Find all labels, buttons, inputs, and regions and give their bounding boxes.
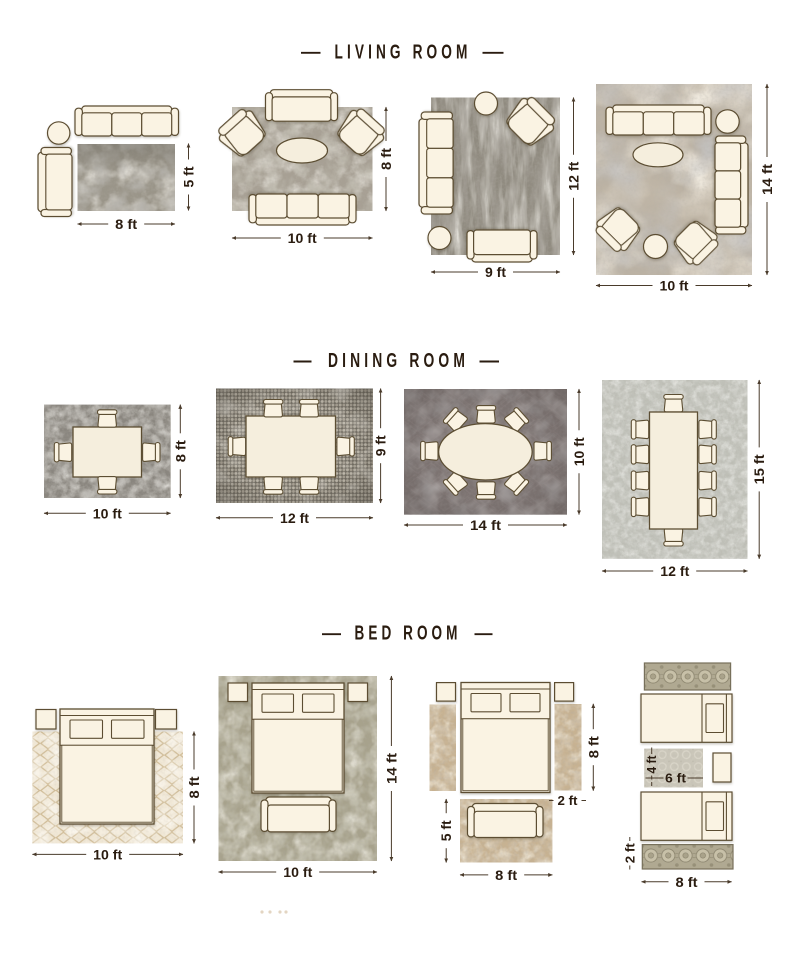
svg-text:8 ft: 8 ft <box>172 440 188 462</box>
svg-text:15 ft: 15 ft <box>751 454 767 484</box>
svg-text:10 ft: 10 ft <box>571 437 587 466</box>
svg-text:5 ft: 5 ft <box>438 820 454 841</box>
svg-text:12 ft: 12 ft <box>660 563 689 579</box>
svg-text:6 ft: 6 ft <box>665 771 687 786</box>
svg-text:8 ft: 8 ft <box>495 867 517 883</box>
svg-text:10 ft: 10 ft <box>93 846 122 862</box>
svg-text:12 ft: 12 ft <box>280 510 309 526</box>
svg-text:14 ft: 14 ft <box>383 753 399 784</box>
svg-text:DINING ROOM: DINING ROOM <box>328 350 469 372</box>
svg-text:BED ROOM: BED ROOM <box>355 623 462 645</box>
svg-text:10 ft: 10 ft <box>288 230 317 246</box>
svg-text:LIVING ROOM: LIVING ROOM <box>335 41 472 63</box>
svg-text:10 ft: 10 ft <box>93 505 122 521</box>
svg-text:10 ft: 10 ft <box>660 278 689 294</box>
svg-text:14 ft: 14 ft <box>470 517 501 533</box>
svg-text:9 ft: 9 ft <box>485 264 506 280</box>
svg-text:8 ft: 8 ft <box>378 148 394 170</box>
svg-text:8 ft: 8 ft <box>186 776 202 798</box>
svg-text:8 ft: 8 ft <box>585 736 601 758</box>
svg-text:2 ft: 2 ft <box>558 793 579 808</box>
svg-text:4 ft: 4 ft <box>644 755 659 774</box>
svg-text:10 ft: 10 ft <box>283 864 312 880</box>
svg-text:14 ft: 14 ft <box>759 164 775 195</box>
svg-text:5 ft: 5 ft <box>181 166 197 187</box>
svg-text:2 ft: 2 ft <box>622 843 637 864</box>
svg-text:12 ft: 12 ft <box>566 161 582 190</box>
svg-text:9 ft: 9 ft <box>373 435 389 456</box>
svg-text:8 ft: 8 ft <box>676 874 698 890</box>
svg-text:8 ft: 8 ft <box>115 216 137 232</box>
